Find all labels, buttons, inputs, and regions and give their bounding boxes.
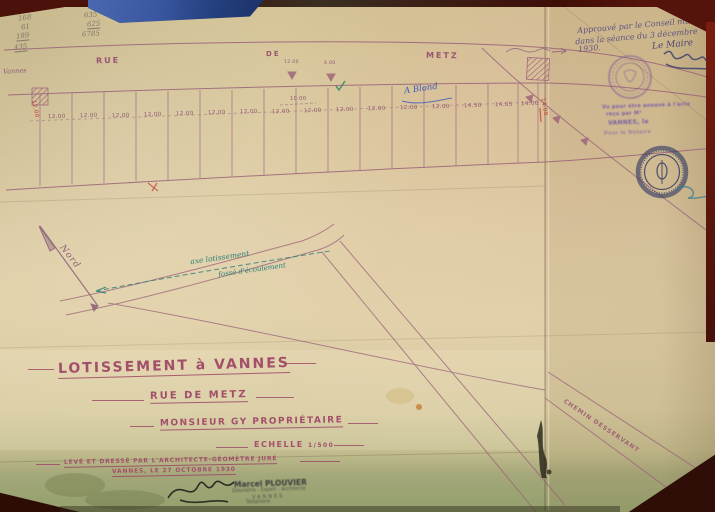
plot-dim: 12.00 <box>400 105 418 112</box>
photographed-plan: 168 61 189 435 635 625 6785 Approuvé par… <box>0 0 715 512</box>
title-dash <box>28 369 54 370</box>
plot-dim: 12.00 <box>336 107 354 114</box>
scale-line: ECHELLE 1/500 <box>254 440 334 449</box>
plan-subtitle-street: RUE DE METZ <box>150 389 248 404</box>
plot-dim: 14.00 <box>521 101 539 108</box>
architect-signature <box>168 481 234 502</box>
blue-note-flourish <box>402 98 452 103</box>
scale-value: 1/500 <box>308 442 334 449</box>
pencil-calc-6: 625 <box>87 20 101 30</box>
title-dash <box>92 400 144 401</box>
plot-dim: 12.00 <box>144 112 162 119</box>
plot-dim-inner: 10.00 <box>290 96 306 102</box>
title-dash <box>348 423 378 424</box>
title-dash <box>286 363 316 364</box>
north-arrow-icon <box>39 226 98 311</box>
pencil-calc-1: 168 <box>18 13 32 22</box>
plot-dim: 12.00 <box>208 110 226 117</box>
plot-dim-upper1: 12.00 <box>284 60 299 65</box>
street-label-metz: METZ <box>426 51 459 61</box>
title-dash <box>334 445 364 446</box>
street-label-de: DE <box>266 50 281 58</box>
plot-dim: 12.00 <box>48 114 66 121</box>
plot-dim: 12.00 <box>272 109 290 116</box>
plot-dim: 12.00 <box>432 104 450 111</box>
title-dash <box>300 461 340 462</box>
plot-dim: 12.00 <box>176 111 194 118</box>
hatched-plot-right <box>526 57 549 80</box>
architect-stamp-line3: Téléphone <box>246 500 271 506</box>
vu-stamp-line3: VANNES, le <box>608 118 649 126</box>
plot-dim: 12.00 <box>112 113 130 120</box>
photo-bottom-edge <box>60 506 620 512</box>
street-label-rue: RUE <box>96 56 120 66</box>
pencil-calc-2: 61 <box>21 23 31 32</box>
title-dash <box>256 397 294 398</box>
plot-dim: 14.05 <box>495 102 513 109</box>
pencil-calc-3: 189 <box>16 31 30 41</box>
plot-dim: 12.00 <box>304 108 322 115</box>
scale-label: ECHELLE <box>254 440 304 449</box>
plot-dim: 14.50 <box>464 103 482 110</box>
mairie-round-stamp <box>609 56 651 98</box>
plot-dim: 12.00 <box>240 109 258 116</box>
pencil-calc-7: 6785 <box>82 29 100 38</box>
plot-dim-upper2: 4.00 <box>324 61 336 66</box>
photo-right-edge <box>706 22 715 342</box>
title-dash <box>216 447 248 448</box>
pencil-calc-5: 635 <box>84 11 98 20</box>
plot-dim: 12.00 <box>368 106 386 113</box>
plot-dim: 12.00 <box>80 113 98 120</box>
pencil-calc-4: 435 <box>14 42 28 52</box>
vu-stamp-line2: reçu par Mᵉ <box>606 110 642 117</box>
direction-vannes: Vannes <box>3 66 27 75</box>
title-dash <box>130 426 154 427</box>
title-dash <box>36 464 60 465</box>
